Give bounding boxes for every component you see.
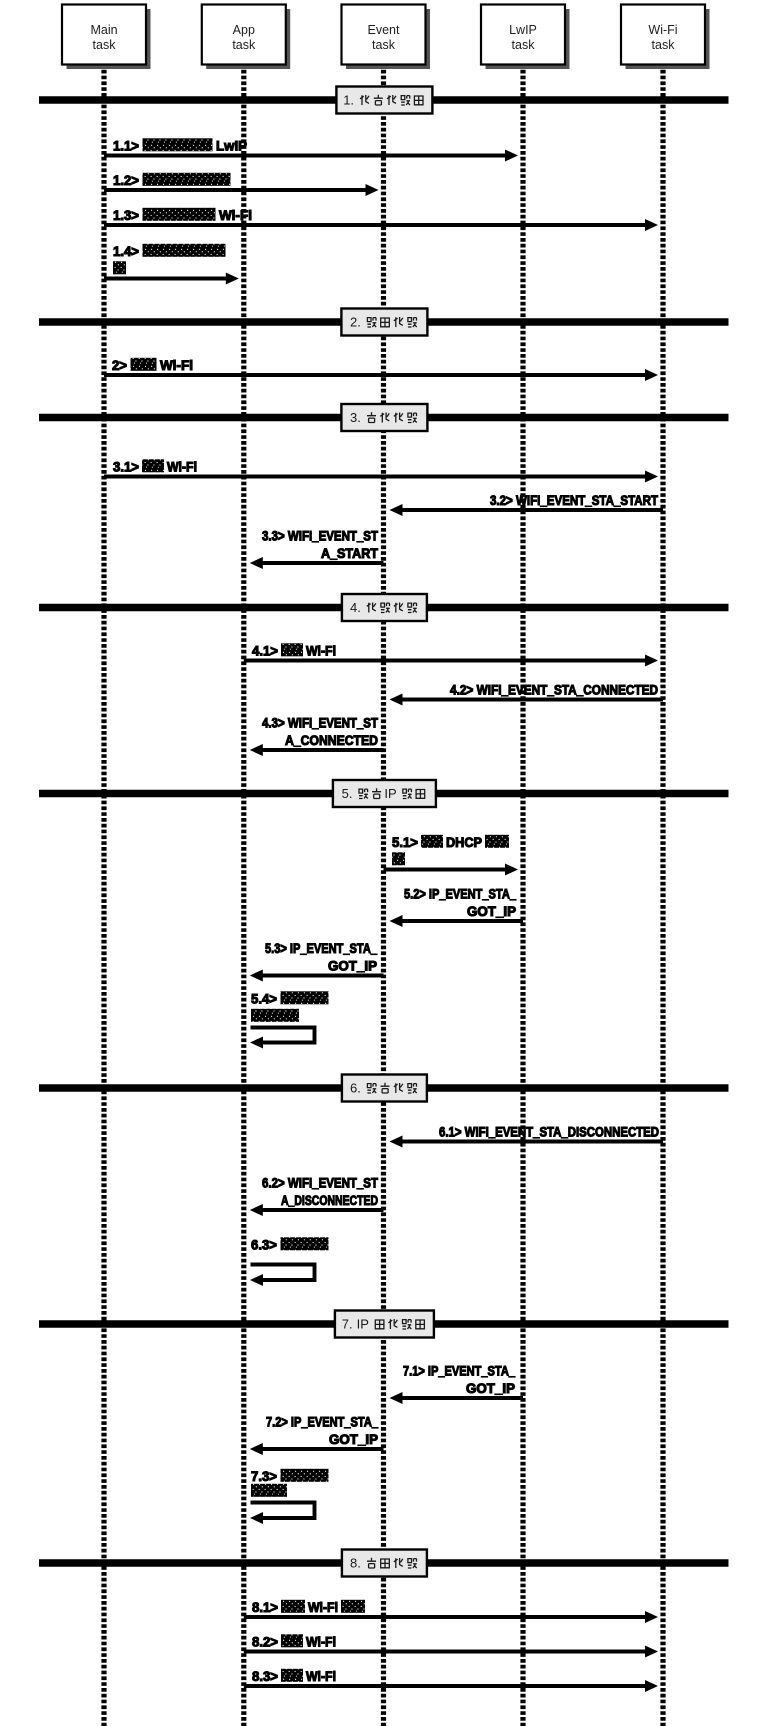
svg-text:1.4>: 1.4> [113,244,139,259]
svg-text:task: task [232,38,256,52]
svg-text:Main: Main [90,23,117,37]
svg-text:7.2> IP_EVENT_STA_: 7.2> IP_EVENT_STA_ [266,1415,378,1430]
svg-text:8.: 8. [350,1556,361,1571]
svg-text:1.: 1. [343,93,354,108]
svg-text:6.3>: 6.3> [251,1238,277,1253]
svg-text:Event: Event [368,23,400,37]
svg-text:Wi-Fi: Wi-Fi [306,644,336,659]
svg-text:IP: IP [384,786,396,801]
svg-text:DHCP: DHCP [446,835,482,850]
svg-text:4.2> WIFI_EVENT_STA_CONNECTED: 4.2> WIFI_EVENT_STA_CONNECTED [450,683,658,698]
svg-text:LwIP: LwIP [216,139,247,154]
svg-text:5.3> IP_EVENT_STA_: 5.3> IP_EVENT_STA_ [265,941,377,956]
svg-text:Wi-Fi: Wi-Fi [167,460,197,475]
svg-text:5.: 5. [342,786,353,801]
svg-text:7.: 7. [342,1317,353,1332]
svg-text:7.3>: 7.3> [251,1469,277,1484]
svg-text:6.2> WIFI_EVENT_ST: 6.2> WIFI_EVENT_ST [262,1176,379,1191]
svg-text:LwIP: LwIP [509,23,537,37]
svg-text:4.: 4. [350,600,361,615]
svg-text:GOT_IP: GOT_IP [328,959,377,974]
svg-text:A_DISCONNECTED: A_DISCONNECTED [281,1193,378,1208]
svg-text:GOT_IP: GOT_IP [466,1381,515,1396]
svg-text:2>: 2> [112,358,127,373]
svg-text:IP: IP [357,1317,369,1332]
svg-text:8.2>: 8.2> [252,1635,278,1650]
svg-text:8.1>: 8.1> [252,1600,278,1615]
svg-text:Wi-Fi: Wi-Fi [306,1635,336,1650]
svg-text:3.3> WIFI_EVENT_ST: 3.3> WIFI_EVENT_ST [262,529,379,544]
svg-text:Wi-Fi: Wi-Fi [648,23,677,37]
svg-text:GOT_IP: GOT_IP [329,1432,378,1447]
svg-text:Wi-Fi: Wi-Fi [160,358,193,373]
svg-text:Wi-Fi: Wi-Fi [306,1669,336,1684]
svg-text:7.1> IP_EVENT_STA_: 7.1> IP_EVENT_STA_ [403,1364,515,1379]
svg-text:task: task [372,38,396,52]
svg-text:4.1>: 4.1> [252,644,278,659]
svg-text:3.2> WIFI_EVENT_STA_START: 3.2> WIFI_EVENT_STA_START [490,493,659,508]
svg-text:2.: 2. [350,315,361,330]
svg-text:App: App [233,23,255,37]
svg-text:GOT_IP: GOT_IP [467,904,516,919]
svg-text:3.: 3. [350,410,361,425]
svg-text:5.1>: 5.1> [392,835,418,850]
svg-text:Wi-Fi: Wi-Fi [308,1600,338,1615]
svg-text:5.4>: 5.4> [251,992,277,1007]
svg-text:A_CONNECTED: A_CONNECTED [285,733,378,748]
svg-text:3.1>: 3.1> [113,460,139,475]
svg-text:6.: 6. [350,1081,361,1096]
svg-text:4.3> WIFI_EVENT_ST: 4.3> WIFI_EVENT_ST [262,716,379,731]
svg-text:1.2>: 1.2> [113,173,139,188]
svg-text:8.3>: 8.3> [252,1669,278,1684]
svg-text:5.2> IP_EVENT_STA_: 5.2> IP_EVENT_STA_ [404,887,516,902]
svg-text:task: task [652,38,676,52]
svg-text:task: task [93,38,117,52]
svg-text:Wi-Fi: Wi-Fi [219,208,252,223]
svg-text:1.1>: 1.1> [113,139,139,154]
svg-text:task: task [512,38,536,52]
svg-text:A_START: A_START [321,546,379,561]
svg-text:1.3>: 1.3> [113,208,139,223]
svg-text:6.1> WIFI_EVENT_STA_DISCONNECT: 6.1> WIFI_EVENT_STA_DISCONNECTED [439,1125,659,1140]
